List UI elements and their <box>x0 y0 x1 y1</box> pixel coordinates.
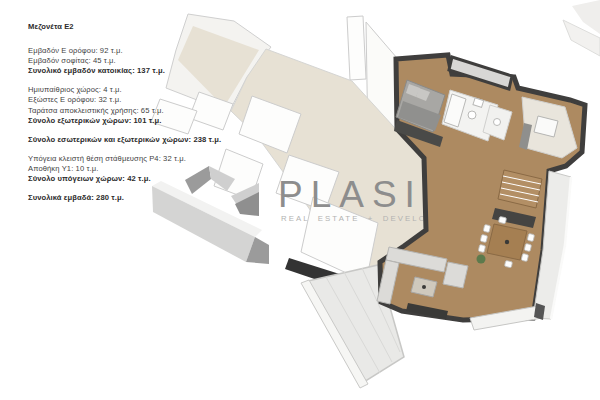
coffee-table-item <box>422 285 426 289</box>
info-line: Εμβαδόν σοφίτας: 45 τ.μ. <box>28 56 268 66</box>
info-line: Εξώστες Ε ορόφου: 32 τ.μ. <box>28 95 268 105</box>
unit-title: Μεζονέτα Ε2 <box>28 22 268 32</box>
info-line: Υπόγεια κλειστή θέση στάθμευσης Ρ4: 32 τ… <box>28 154 268 164</box>
dining-chair <box>480 234 487 242</box>
interior-areas-group: Εμβαδόν Ε ορόφου: 92 τ.μ. Εμβαδόν σοφίτα… <box>28 46 268 76</box>
info-line: Αποθήκη Υ1: 10 τ.μ. <box>28 164 268 174</box>
floorplan-page: PLASIS REAL ESTATE + DEVELOPMENT <box>0 0 600 400</box>
info-panel: Μεζονέτα Ε2 Εμβαδόν Ε ορόφου: 92 τ.μ. Εμ… <box>28 22 268 212</box>
wc-toilet <box>494 119 501 126</box>
dining-chair <box>524 243 531 251</box>
info-line: Ημιυπαίθριος χώρος: 4 τ.μ. <box>28 85 268 95</box>
dining-chair <box>521 253 528 261</box>
info-line-total: Σύνολο εσωτερικών και εξωτερικών χώρων: … <box>28 135 268 145</box>
toilet <box>468 111 476 119</box>
dining-chair <box>478 244 485 252</box>
dining-chair <box>483 224 490 232</box>
combined-total-group: Σύνολο εσωτερικών και εξωτερικών χώρων: … <box>28 135 268 145</box>
top-strip <box>347 16 366 80</box>
info-line-total: Συνολικό εμβαδόν κατοικίας: 137 τ.μ. <box>28 66 268 76</box>
table-centerpiece <box>505 240 509 244</box>
info-line: Εμβαδόν Ε ορόφου: 92 τ.μ. <box>28 46 268 56</box>
dining-chair <box>498 216 506 223</box>
exterior-areas-group: Ημιυπαίθριος χώρος: 4 τ.μ. Εξώστες Ε ορό… <box>28 85 268 125</box>
info-line: Ταράτσα αποκλειστικής χρήσης: 65 τ.μ. <box>28 106 268 116</box>
grand-total-group: Συνολικά εμβαδά: 280 τ.μ. <box>28 193 268 203</box>
info-line-total: Συνολικά εμβαδά: 280 τ.μ. <box>28 193 268 203</box>
dining-chair <box>527 233 534 241</box>
armchair <box>443 262 468 288</box>
info-line-total: Σύνολο υπόγειων χώρων: 42 τ.μ. <box>28 174 268 184</box>
plant <box>477 255 486 264</box>
info-line-total: Σύνολο εξωτερικών χώρων: 101 τ.μ. <box>28 116 268 126</box>
basement-areas-group: Υπόγεια κλειστή θέση στάθμευσης Ρ4: 32 τ… <box>28 154 268 184</box>
dining-chair <box>504 260 512 267</box>
bottom-parapet-cap <box>534 303 545 320</box>
